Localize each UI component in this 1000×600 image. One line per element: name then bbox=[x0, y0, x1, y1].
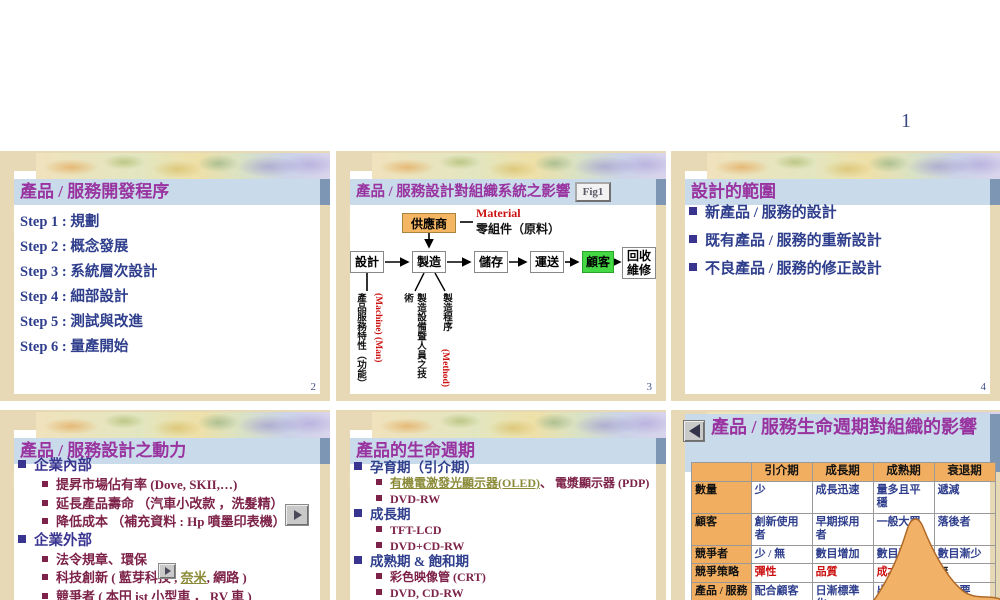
bullet-item: 既有產品 / 服務的重新設計 bbox=[689, 227, 994, 255]
lifecycle-item: DVD, CD-RW bbox=[376, 586, 660, 600]
bullet-text: 新產品 / 服務的設計 bbox=[705, 205, 837, 221]
table-header-row: 引介期 成長期 成熟期 衰退期 bbox=[692, 463, 996, 482]
slide-6-thumbnail: 產品的生命週期 孕育期（引介期） 有機電激發光顯示器(OLED)、 電漿顯示器 … bbox=[336, 410, 666, 600]
table-row: 競爭者 少 / 無 數目增加 數目穩定 數目漸少 bbox=[692, 545, 996, 564]
bullet-square-icon bbox=[376, 589, 382, 595]
slide-4-thumbnail: 設計的範圍 新產品 / 服務的設計 既有產品 / 服務的重新設計 不良產品 / … bbox=[671, 151, 1000, 401]
bullet-square-icon bbox=[42, 518, 48, 524]
bullet-square-icon bbox=[689, 235, 697, 243]
table-cell: 品質 bbox=[812, 564, 873, 583]
driver-item: 降低成本 （補充資料 : Hp 噴墨印表機） bbox=[42, 513, 324, 532]
driver-item: 延長產品壽命 （汽車小改款 ，洗髮精） bbox=[42, 495, 324, 514]
flow-box-transport: 運送 bbox=[530, 251, 564, 273]
titlebar-end-tab bbox=[320, 179, 330, 205]
bullet-square-icon bbox=[18, 460, 26, 468]
section-text: 企業內部 bbox=[34, 458, 92, 474]
section-text: 企業外部 bbox=[34, 533, 92, 549]
video-play-button[interactable] bbox=[158, 563, 176, 579]
table-header-cell: 成熟期 bbox=[873, 463, 934, 482]
table-cell: 落後者 bbox=[934, 513, 995, 545]
slide-title: 產品 / 服務設計對組織系統之影響 bbox=[356, 184, 570, 200]
driver-item: 法令規章、環保 bbox=[42, 551, 324, 570]
step-item: Step 6 : 量產開始 bbox=[20, 335, 157, 360]
driver-item: 提昇市場佔有率 (Dove, SKII,…) bbox=[42, 476, 324, 495]
lifecycle-item: DVD+CD-RW bbox=[376, 539, 660, 555]
bullet-square-icon bbox=[354, 556, 362, 564]
method-vertical-text: (Method) bbox=[438, 349, 451, 399]
table-cell: 不需要 bbox=[934, 582, 995, 600]
driver-text: 法令規章、環保 bbox=[56, 552, 147, 567]
machine-man-vertical-text: (Machine) (Man) bbox=[371, 293, 384, 393]
item-text: 、 電漿顯示器 (PDP) bbox=[540, 476, 649, 490]
flow-box-store: 儲存 bbox=[474, 251, 508, 273]
item-text: DVD, CD-RW bbox=[390, 586, 464, 600]
item-text: DVD+CD-RW bbox=[390, 539, 464, 553]
bullet-square-icon bbox=[42, 556, 48, 562]
leaf-collage-banner bbox=[36, 153, 330, 179]
slide-title-bar: 產品 / 服務開發程序 bbox=[14, 179, 320, 205]
table-cell: 數目穩定 bbox=[873, 545, 934, 564]
table-cell: 量多且平穩 bbox=[873, 481, 934, 513]
lifecycle-list: 孕育期（引介期） 有機電激發光顯示器(OLED)、 電漿顯示器 (PDP) DV… bbox=[354, 460, 660, 600]
table-cell: 遞減 bbox=[934, 481, 995, 513]
stage-text: 成長期 bbox=[370, 507, 411, 522]
bullet-list: 新產品 / 服務的設計 既有產品 / 服務的重新設計 不良產品 / 服務的修正設… bbox=[689, 199, 994, 283]
fig1-button[interactable]: Fig1 bbox=[575, 182, 611, 202]
stage-heading: 成長期 bbox=[354, 507, 660, 523]
table-cell: 少 / 無 bbox=[751, 545, 812, 564]
leaf-collage-banner bbox=[372, 412, 666, 438]
slide-number: 2 bbox=[311, 381, 317, 393]
oled-hyperlink[interactable]: 有機電激發光顯示器(OLED) bbox=[390, 476, 540, 490]
table-row: 產品 / 服務 配合顧客 日漸標準化 出現主流 不需要 bbox=[692, 582, 996, 600]
table-row: 顧客 創新使用者 早期採用者 一般大眾 落後者 bbox=[692, 513, 996, 545]
bullet-square-icon bbox=[376, 479, 382, 485]
lifecycle-item: 彩色映像管 (CRT) bbox=[376, 570, 660, 586]
table-cell: 數目漸少 bbox=[934, 545, 995, 564]
row-label-cell: 產品 / 服務 bbox=[692, 582, 752, 600]
table-cell: 數目增加 bbox=[812, 545, 873, 564]
step-item: Step 4 : 細部設計 bbox=[20, 285, 157, 310]
mfg-process-vertical-text: 製造程序 bbox=[438, 293, 452, 345]
flow-box-design: 設計 bbox=[350, 251, 384, 273]
row-label-cell: 競爭者 bbox=[692, 545, 752, 564]
step-item: Step 5 : 測試與改進 bbox=[20, 310, 157, 335]
driver-text: 延長產品壽命 （汽車小改款 ，洗髮精） bbox=[56, 496, 284, 511]
play-icon bbox=[294, 510, 302, 520]
slide-title: 產品 / 服務生命週期對組織的影響 bbox=[711, 417, 977, 437]
handout-page: 1 產品 / 服務開發程序 Step 1 : 規劃 Step 2 : 概念發展 … bbox=[0, 0, 1000, 600]
lifecycle-item: 有機電激發光顯示器(OLED)、 電漿顯示器 (PDP) bbox=[376, 476, 660, 492]
step-list: Step 1 : 規劃 Step 2 : 概念發展 Step 3 : 系統層次設… bbox=[20, 210, 157, 360]
bullet-square-icon bbox=[376, 526, 382, 532]
driver-text: , 網路 ) bbox=[207, 570, 247, 585]
slide-1-page-number: 1 bbox=[901, 110, 911, 133]
bullet-square-icon bbox=[42, 574, 48, 580]
flow-box-customer: 顧客 bbox=[582, 251, 614, 273]
table-cell: 彈性 bbox=[751, 564, 812, 583]
section-heading: 企業內部 bbox=[18, 457, 324, 476]
nano-hyperlink[interactable]: 奈米 bbox=[181, 570, 207, 585]
table-cell: 無 bbox=[934, 564, 995, 583]
stage-heading: 成熟期 & 飽和期 bbox=[354, 554, 660, 570]
table-cell: 一般大眾 bbox=[873, 513, 934, 545]
flow-box-manufacture: 製造 bbox=[412, 251, 446, 273]
mfg-tech-vertical-text: 製造設備暨人員之技術 bbox=[398, 293, 426, 383]
titlebar-end-tab bbox=[656, 179, 666, 205]
bullet-square-icon bbox=[42, 481, 48, 487]
bullet-text: 不良產品 / 服務的修正設計 bbox=[705, 261, 882, 277]
table-cell: 少 bbox=[751, 481, 812, 513]
table-header-cell: 引介期 bbox=[751, 463, 812, 482]
table-cell: 日漸標準化 bbox=[812, 582, 873, 600]
material-label: Material bbox=[476, 206, 521, 221]
slide-title: 產品的生命週期 bbox=[356, 441, 475, 460]
table-cell: 配合顧客 bbox=[751, 582, 812, 600]
supplier-box: 供應商 bbox=[402, 213, 456, 233]
step-item: Step 1 : 規劃 bbox=[20, 210, 157, 235]
bullet-square-icon bbox=[42, 593, 48, 599]
video-play-button[interactable] bbox=[285, 504, 309, 526]
section-heading: 企業外部 bbox=[18, 532, 324, 551]
bullet-item: 新產品 / 服務的設計 bbox=[689, 199, 994, 227]
design-attr-vertical-text: 產品服務特性（功能） bbox=[352, 293, 366, 397]
step-item: Step 2 : 概念發展 bbox=[20, 235, 157, 260]
bullet-square-icon bbox=[376, 495, 382, 501]
slide-number: 4 bbox=[981, 381, 987, 393]
table-row: 競爭策略 彈性 品質 成本 無 bbox=[692, 564, 996, 583]
slide-5-thumbnail: 產品 / 服務設計之動力 企業內部 提昇市場佔有率 (Dove, SKII,…)… bbox=[0, 410, 330, 600]
stage-text: 孕育期（引介期） bbox=[370, 460, 478, 475]
leaf-collage-banner bbox=[372, 153, 666, 179]
row-label-cell: 數量 bbox=[692, 481, 752, 513]
bullet-square-icon bbox=[376, 542, 382, 548]
material-sub-label: 零組件（原料） bbox=[476, 220, 560, 237]
table-header-cell bbox=[692, 463, 752, 482]
play-icon bbox=[165, 567, 171, 575]
bullet-square-icon bbox=[42, 500, 48, 506]
bullet-text: 既有產品 / 服務的重新設計 bbox=[705, 233, 882, 249]
driver-item: 競爭者 ( 本田 ist 小型車 ， RV 車 ) bbox=[42, 588, 324, 600]
lifecycle-item: TFT-LCD bbox=[376, 523, 660, 539]
bullet-item: 不良產品 / 服務的修正設計 bbox=[689, 255, 994, 283]
bullet-square-icon bbox=[376, 573, 382, 579]
table-header-cell: 成長期 bbox=[812, 463, 873, 482]
driver-text: 提昇市場佔有率 (Dove, SKII,…) bbox=[56, 477, 237, 492]
lifecycle-item: DVD-RW bbox=[376, 492, 660, 508]
item-text: 彩色映像管 (CRT) bbox=[390, 570, 486, 584]
slide-title: 產品 / 服務開發程序 bbox=[20, 182, 169, 201]
bullet-square-icon bbox=[689, 207, 697, 215]
stage-heading: 孕育期（引介期） bbox=[354, 460, 660, 476]
table-row: 數量 少 成長迅速 量多且平穩 遞減 bbox=[692, 481, 996, 513]
bullet-square-icon bbox=[354, 509, 362, 517]
slide-2-thumbnail: 產品 / 服務開發程序 Step 1 : 規劃 Step 2 : 概念發展 St… bbox=[0, 151, 330, 401]
bullet-square-icon bbox=[689, 263, 697, 271]
row-label-cell: 競爭策略 bbox=[692, 564, 752, 583]
table-cell: 成長迅速 bbox=[812, 481, 873, 513]
slide-number: 3 bbox=[647, 381, 653, 393]
table-cell: 創新使用者 bbox=[751, 513, 812, 545]
lifecycle-table: 引介期 成長期 成熟期 衰退期 數量 少 成長迅速 量多且平穩 遞減 顧客 創新… bbox=[691, 462, 996, 600]
driver-text: 競爭者 ( 本田 ist 小型車 ， RV 車 ) bbox=[56, 589, 252, 600]
leaf-collage-banner bbox=[707, 153, 1000, 179]
table-header-cell: 衰退期 bbox=[934, 463, 995, 482]
driver-item: 科技創新 ( 藍芽科技 , 奈米, 網路 ) bbox=[42, 569, 324, 588]
driver-text: 降低成本 （補充資料 : Hp 噴墨印表機） bbox=[56, 514, 286, 529]
back-arrow-icon bbox=[689, 424, 700, 438]
bullet-square-icon bbox=[354, 462, 362, 470]
item-text: DVD-RW bbox=[390, 492, 440, 506]
table-cell: 出現主流 bbox=[873, 582, 934, 600]
back-nav-button[interactable] bbox=[683, 420, 705, 442]
bullet-square-icon bbox=[18, 535, 26, 543]
slide-7-thumbnail: 產品 / 服務生命週期對組織的影響 引介期 成長期 成熟期 衰退期 數量 少 成… bbox=[671, 410, 1000, 600]
table-cell: 成本 bbox=[873, 564, 934, 583]
table-cell: 早期採用者 bbox=[812, 513, 873, 545]
row-label-cell: 顧客 bbox=[692, 513, 752, 545]
flow-box-recycle: 回收維修 bbox=[622, 247, 656, 279]
leaf-collage-banner bbox=[36, 412, 330, 438]
stage-text: 成熟期 & 飽和期 bbox=[370, 554, 469, 569]
item-text: TFT-LCD bbox=[390, 523, 442, 537]
step-item: Step 3 : 系統層次設計 bbox=[20, 260, 157, 285]
slide-3-thumbnail: 產品 / 服務設計對組織系統之影響 Fig1 供應商 Material 零組件（… bbox=[336, 151, 666, 401]
